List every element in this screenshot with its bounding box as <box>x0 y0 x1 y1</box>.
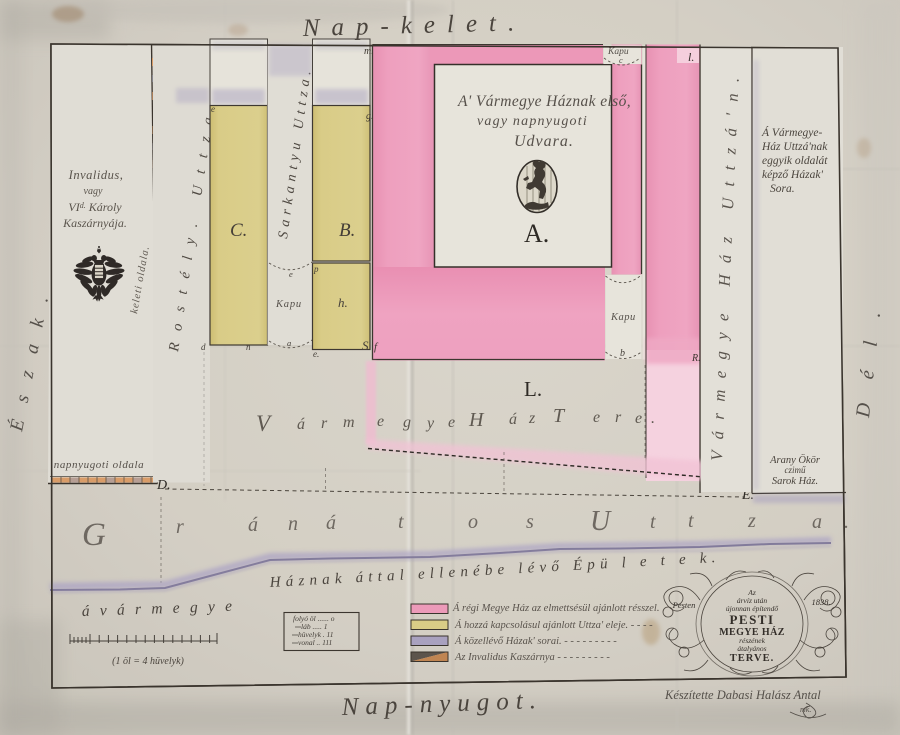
svg-text:Kapu: Kapu <box>607 47 629 57</box>
svg-text:g: g <box>403 414 411 431</box>
svg-text:p: p <box>313 264 319 274</box>
svg-text:á: á <box>509 411 517 428</box>
svg-text:T: T <box>553 405 566 427</box>
svg-text:Sora.: Sora. <box>770 183 795 195</box>
svg-text:PESTI: PESTI <box>729 612 774 627</box>
svg-text:L.: L. <box>524 377 542 401</box>
svg-text:c: c <box>619 55 623 65</box>
svg-text:Az Invalidus Kaszárnya - - - -: Az Invalidus Kaszárnya - - - - - - - - - <box>454 652 610 663</box>
svg-text:r: r <box>615 409 622 426</box>
svg-text:D.: D. <box>156 478 171 493</box>
svg-text:n: n <box>288 513 298 535</box>
svg-text:VId. Károly: VId. Károly <box>68 200 122 214</box>
svg-text:Á régi Megye Ház az elmettsésü: Á régi Megye Ház az elmettsésül ajánlott… <box>452 602 659 614</box>
svg-text:z: z <box>747 510 756 532</box>
svg-text:mk.: mk. <box>800 705 811 714</box>
svg-text:z: z <box>528 410 536 427</box>
svg-text:Á hozzá kapcsolásul ajánlott U: Á hozzá kapcsolásul ajánlott Uttza' elej… <box>454 619 653 631</box>
svg-text:á: á <box>297 416 305 433</box>
svg-text:Készítette Dabasi Halász Antal: Készítette Dabasi Halász Antal <box>664 688 821 702</box>
svg-text:m.: m. <box>364 46 374 57</box>
svg-text:o: o <box>468 511 478 533</box>
svg-text:átalyános: átalyános <box>737 644 766 653</box>
svg-text:vagy napnyugoti: vagy napnyugoti <box>477 114 588 129</box>
svg-text:.: . <box>651 410 655 427</box>
svg-text:Invalidus,: Invalidus, <box>68 168 124 182</box>
svg-text:e: e <box>593 409 600 426</box>
svg-text:s: s <box>526 511 534 533</box>
svg-text:b: b <box>620 348 625 359</box>
svg-text:H: H <box>468 409 485 431</box>
svg-text:Kapu: Kapu <box>275 299 302 310</box>
svg-text:h.: h. <box>338 295 348 310</box>
svg-text:Udvara.: Udvara. <box>514 133 574 150</box>
svg-text:e: e <box>211 104 215 114</box>
svg-text:á: á <box>248 514 258 536</box>
svg-text:A.: A. <box>524 219 549 248</box>
svg-text:vonal .. 111: vonal .. 111 <box>298 638 332 647</box>
svg-text:r: r <box>321 415 328 432</box>
svg-text:Á Vármegye-: Á Vármegye- <box>761 125 823 139</box>
svg-text:y: y <box>425 415 435 432</box>
svg-text:czimű: czimű <box>785 465 806 475</box>
svg-text:e.: e. <box>313 349 319 359</box>
svg-text:Ház Uttzá'nak: Ház Uttzá'nak <box>761 141 828 153</box>
svg-text:(1 öl = 4 hüvelyk): (1 öl = 4 hüvelyk) <box>112 656 184 667</box>
svg-text:t: t <box>688 510 694 532</box>
svg-text:r: r <box>176 516 184 538</box>
svg-text:S: S <box>362 338 369 353</box>
svg-text:TERVE.: TERVE. <box>730 653 774 664</box>
svg-text:t: t <box>398 511 404 533</box>
svg-text:e: e <box>635 410 642 427</box>
svg-text:Kaszárnyája.: Kaszárnyája. <box>62 216 127 230</box>
svg-text:t: t <box>650 511 656 533</box>
svg-text:képző Házak': képző Házak' <box>762 168 823 181</box>
svg-text:eggyik oldalát: eggyik oldalát <box>762 155 828 167</box>
svg-text:C.: C. <box>230 220 247 241</box>
svg-text:Pesten: Pesten <box>672 600 696 610</box>
svg-text:vagy: vagy <box>84 186 103 197</box>
svg-text:g.: g. <box>366 111 374 122</box>
svg-text:Á közellévő Házak' sorai. - -: Á közellévő Házak' sorai. - - - - - - - … <box>454 635 617 647</box>
svg-text:a: a <box>812 511 822 533</box>
svg-text:U: U <box>590 506 612 537</box>
svg-text:a: a <box>287 338 291 348</box>
svg-text:G: G <box>82 517 106 553</box>
svg-text:B.: B. <box>339 220 355 241</box>
svg-text:e: e <box>448 414 455 431</box>
svg-text:Sarok Ház.: Sarok Ház. <box>772 476 818 487</box>
svg-text:napnyugoti oldala: napnyugoti oldala <box>54 459 145 471</box>
svg-text:m: m <box>343 414 355 431</box>
svg-text:R.: R. <box>691 353 701 364</box>
svg-text:1838.: 1838. <box>811 597 830 607</box>
svg-text:A' Vármegye Háznak első,: A' Vármegye Háznak első, <box>457 93 631 110</box>
svg-text:n: n <box>246 342 251 352</box>
svg-text:e: e <box>377 413 384 430</box>
svg-text:á: á <box>326 512 336 534</box>
svg-text:e: e <box>289 269 293 279</box>
svg-text:Kapu: Kapu <box>610 312 636 323</box>
svg-text:l.: l. <box>688 50 694 64</box>
svg-text:d: d <box>201 342 206 352</box>
